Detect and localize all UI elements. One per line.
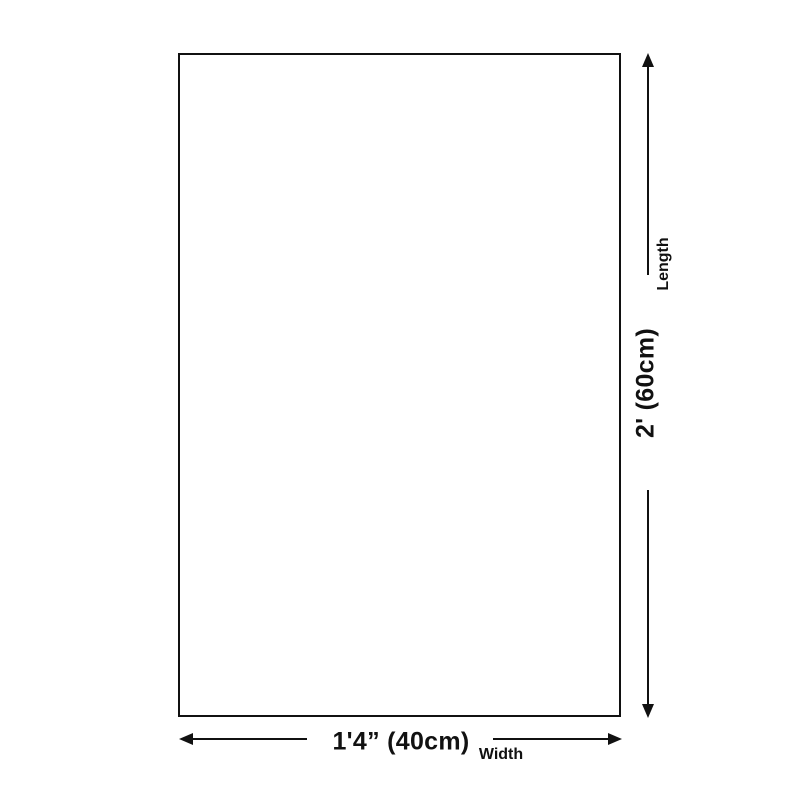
width-dimension-right-line [493,738,612,741]
length-dimension-lower-line [647,490,650,706]
arrow-down-icon [642,704,654,718]
arrow-right-icon [608,733,622,745]
dimension-diagram: Length 2' (60cm) 1'4” (40cm) Width [0,0,800,800]
width-value-label: 1'4” (40cm) [332,728,469,757]
arrow-up-icon [642,53,654,67]
width-dimension-left-line [188,738,307,741]
length-axis-label: Length [655,237,673,290]
width-axis-label: Width [479,746,523,764]
length-dimension-upper-line [647,65,650,275]
arrow-left-icon [179,733,193,745]
product-outline-rectangle [178,53,621,717]
length-value-label: 2' (60cm) [632,328,661,438]
